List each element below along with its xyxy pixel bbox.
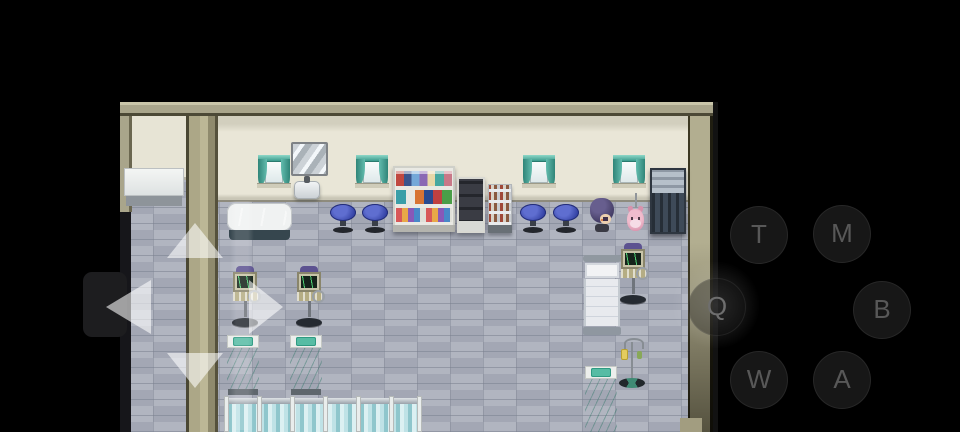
character-sprite <box>590 198 614 232</box>
button-t[interactable]: T <box>730 206 788 264</box>
top-wall-border <box>120 102 718 116</box>
stool-sprite <box>553 204 579 233</box>
bedwhite-sprite <box>583 255 621 335</box>
button-b[interactable]: B <box>853 281 911 339</box>
wall-corner-block <box>680 418 702 432</box>
button-q[interactable]: Q <box>688 278 746 336</box>
button-m[interactable]: M <box>813 205 871 263</box>
screenshot-stage: TMQBWA <box>0 0 960 432</box>
table-sprite <box>124 168 184 208</box>
creature-sprite <box>627 193 644 233</box>
game-viewport <box>120 102 718 432</box>
bedgreen-sprite <box>585 366 617 432</box>
cabinet-sprite <box>457 177 485 233</box>
ekg-sprite <box>296 266 323 328</box>
ekg-sprite <box>620 243 647 305</box>
stool-sprite <box>330 204 356 233</box>
window-sprite <box>613 155 645 188</box>
smallshelf-sprite <box>488 184 512 233</box>
divider-wall <box>186 116 218 432</box>
sink-sprite <box>294 176 320 201</box>
mirror-sprite <box>291 142 328 176</box>
stool-sprite <box>520 204 546 233</box>
ivstand-sprite <box>618 338 646 388</box>
button-w[interactable]: W <box>730 351 788 409</box>
window-sprite <box>258 155 290 188</box>
button-a[interactable]: A <box>813 351 871 409</box>
bedgreen-sprite <box>290 335 322 395</box>
window-sprite <box>523 155 555 188</box>
window-sprite <box>356 155 388 188</box>
locker-sprite <box>650 168 686 234</box>
bigshelf-sprite <box>393 166 455 232</box>
stool-sprite <box>362 204 388 233</box>
